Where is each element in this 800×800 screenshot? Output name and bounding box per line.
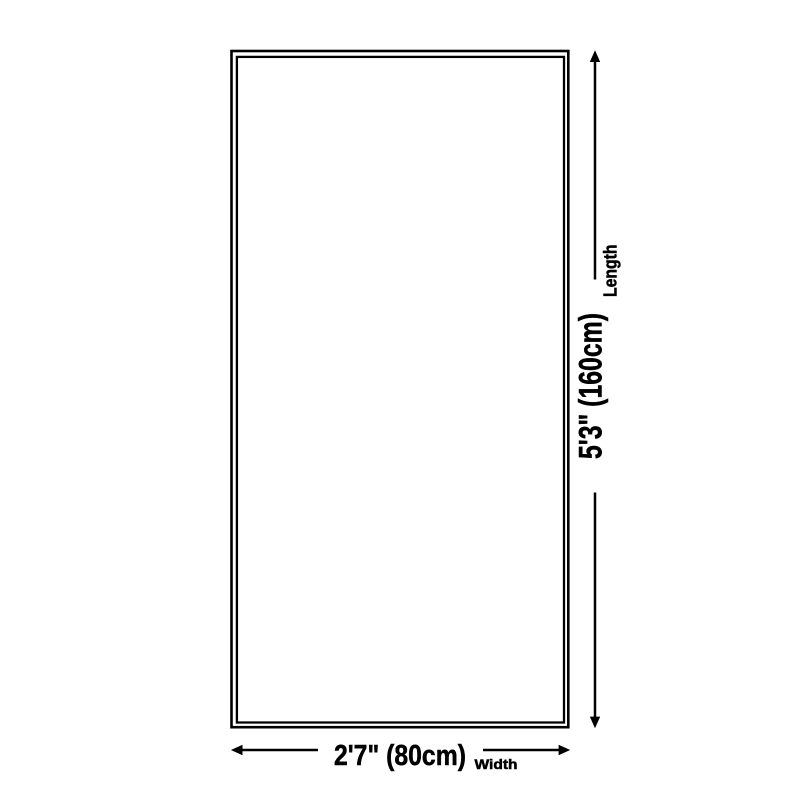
svg-text:2'7" (80cm): 2'7" (80cm)	[334, 740, 466, 772]
svg-text:Length: Length	[601, 245, 621, 298]
svg-text:5'3" (160cm): 5'3" (160cm)	[573, 313, 609, 459]
svg-text:Width: Width	[475, 756, 518, 772]
